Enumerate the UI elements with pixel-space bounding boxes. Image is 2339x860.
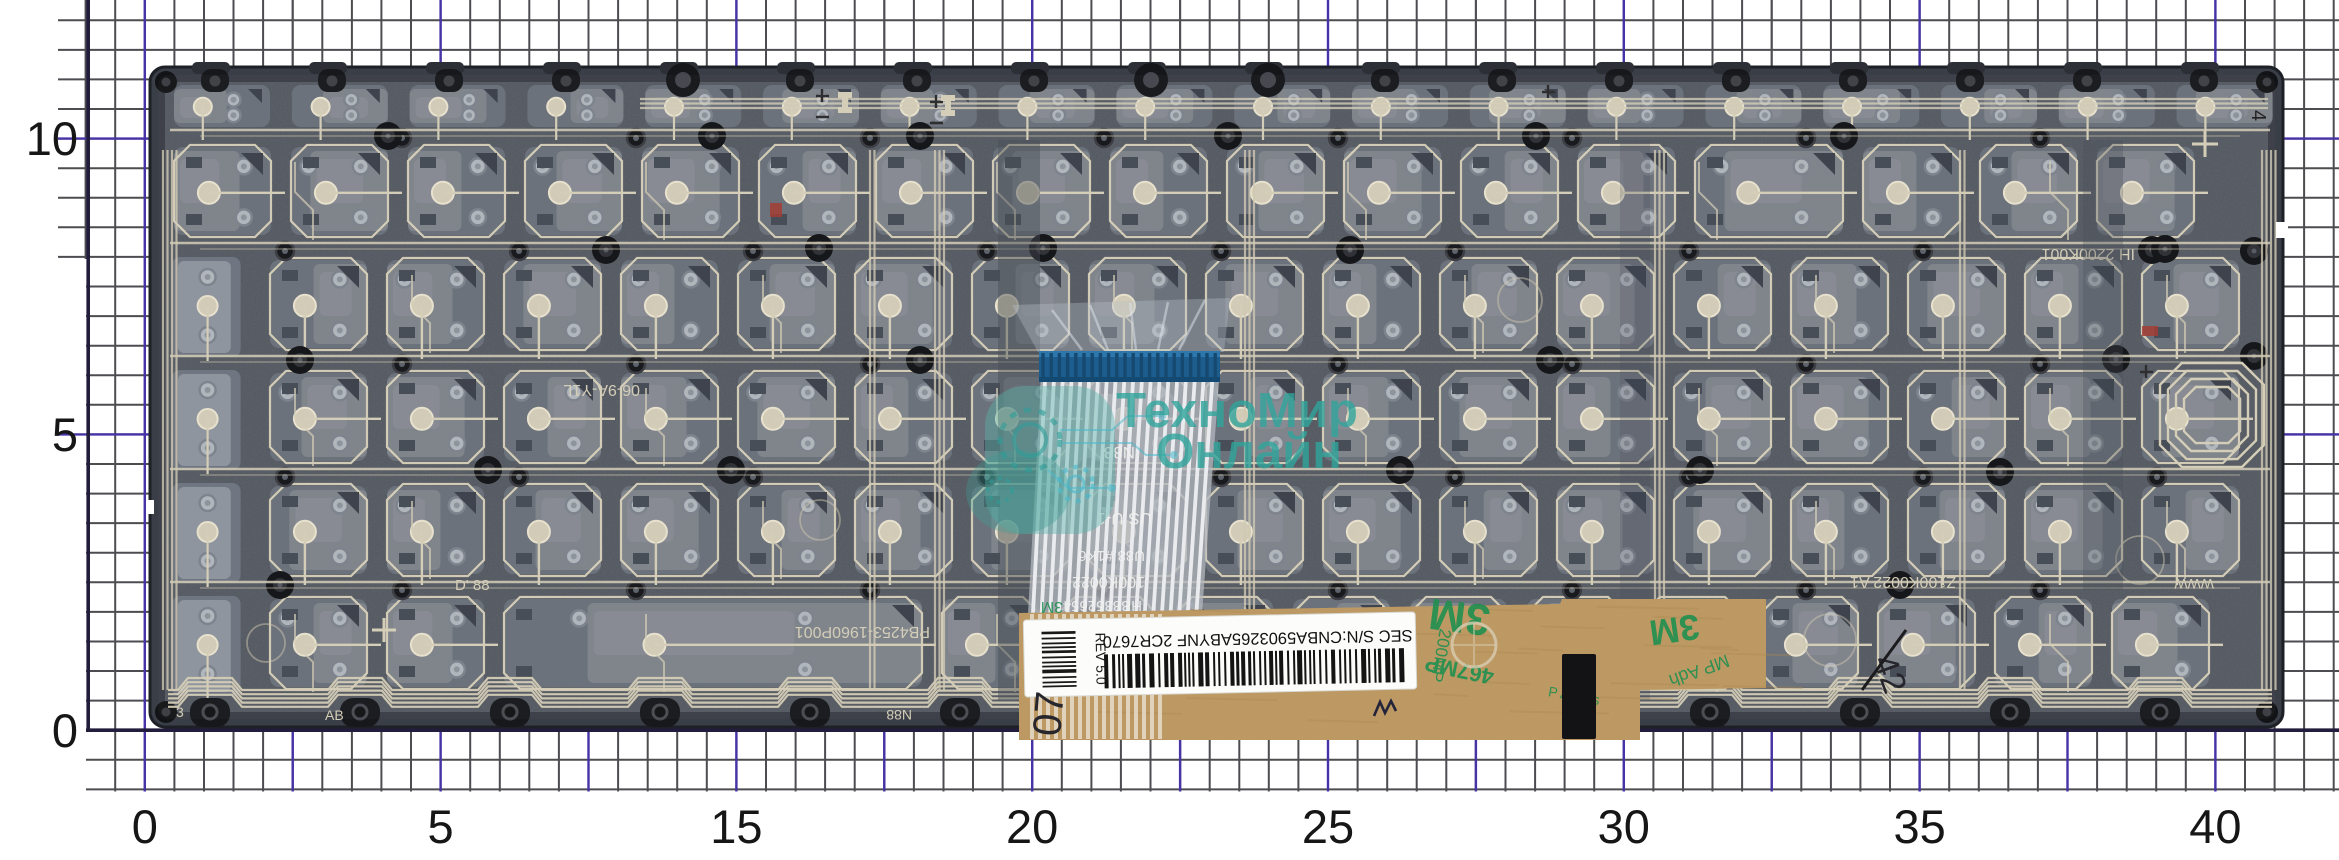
svg-text:15: 15 <box>710 800 762 853</box>
svg-text:10: 10 <box>26 112 78 165</box>
svg-text:5: 5 <box>52 408 78 461</box>
svg-text:U38 #1K6: U38 #1K6 <box>1078 547 1145 564</box>
svg-text:4: 4 <box>2247 110 2269 121</box>
svg-text:100K0022: 100K0022 <box>1072 573 1145 590</box>
svg-text:3M: 3M <box>1041 598 1063 615</box>
svg-text:Онлайн: Онлайн <box>1156 425 1342 479</box>
svg-text:07: 07 <box>1025 690 1073 738</box>
svg-text:20: 20 <box>1006 800 1058 853</box>
svg-text:35: 35 <box>1893 800 1945 853</box>
svg-text:30: 30 <box>1598 800 1650 853</box>
svg-text:40: 40 <box>2189 800 2241 853</box>
svg-text:0: 0 <box>52 704 78 757</box>
svg-text:25: 25 <box>1302 800 1354 853</box>
svg-text:3M: 3M <box>1647 606 1702 654</box>
svg-text:0: 0 <box>132 800 158 853</box>
svg-text:5: 5 <box>428 800 454 853</box>
